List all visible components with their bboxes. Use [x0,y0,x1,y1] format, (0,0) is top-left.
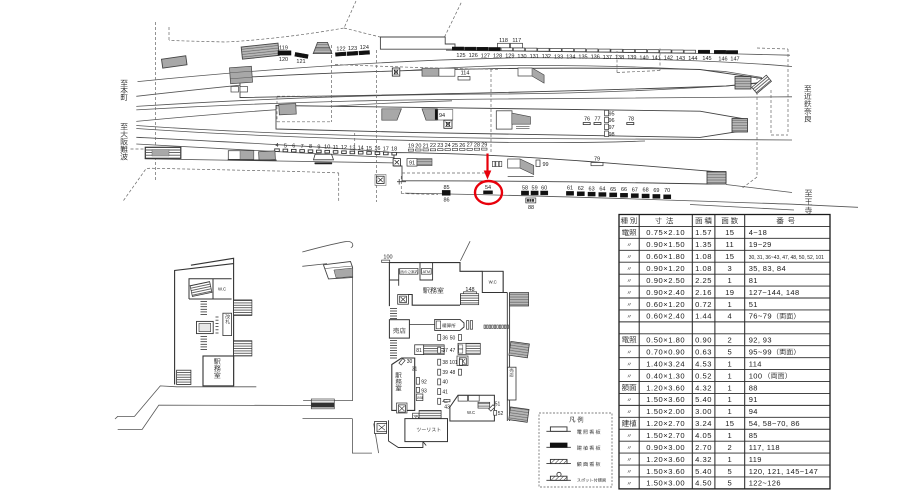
svg-text:0.90×2.40: 0.90×2.40 [646,288,685,297]
svg-text:131: 131 [530,54,539,60]
svg-text:0.70×0.90: 0.70×0.90 [646,347,685,356]
svg-text:141: 141 [652,56,661,62]
svg-text:36: 36 [442,335,448,341]
svg-text:16: 16 [374,146,380,152]
svg-text:63: 63 [589,186,595,192]
svg-text:15: 15 [725,228,734,237]
svg-text:6: 6 [292,144,295,150]
svg-text:15: 15 [725,252,734,261]
svg-text:4.53: 4.53 [695,359,712,368]
svg-text:143: 143 [676,56,685,62]
svg-text:1.08: 1.08 [695,252,712,261]
svg-text:126: 126 [469,53,478,59]
svg-text:W.C: W.C [489,280,497,285]
svg-text:26: 26 [459,143,465,149]
svg-text:39: 39 [442,370,448,376]
svg-text:119: 119 [279,45,288,51]
svg-text:138: 138 [615,55,624,61]
svg-text:68: 68 [643,188,649,194]
svg-text:67: 67 [632,187,638,193]
svg-text:9: 9 [317,144,320,150]
svg-text:70: 70 [664,188,670,194]
svg-text:10: 10 [324,145,330,151]
svg-text:1: 1 [728,371,733,380]
svg-text:1: 1 [728,300,733,309]
svg-text:59: 59 [532,186,538,192]
svg-text:134: 134 [566,54,575,60]
svg-text:127: 127 [481,53,490,59]
svg-text:66: 66 [621,187,627,193]
svg-text:14: 14 [358,146,364,152]
svg-text:121: 121 [296,59,305,65]
svg-text:118: 118 [499,38,508,44]
svg-text:41: 41 [442,389,448,395]
svg-text:43: 43 [444,405,450,411]
svg-text:0.40×1.30: 0.40×1.30 [646,371,685,380]
svg-text:60: 60 [541,186,547,192]
svg-text:4: 4 [728,312,733,321]
svg-text:0.60×1.80: 0.60×1.80 [646,252,685,261]
svg-text:30, 31, 36~43, 47, 48, 50, 52,: 30, 31, 36~43, 47, 48, 50, 52, 101 [749,255,824,261]
svg-text:W.C: W.C [467,410,475,415]
svg-text:1.44: 1.44 [695,312,712,321]
svg-text:21: 21 [423,143,429,149]
svg-text:1.50×2.70: 1.50×2.70 [646,431,685,440]
svg-text:122~126: 122~126 [749,479,781,488]
svg-text:78: 78 [628,116,634,122]
svg-text:4: 4 [275,143,278,149]
svg-text:0.60×1.20: 0.60×1.20 [646,300,685,309]
svg-text:19: 19 [408,144,414,150]
svg-text:2.25: 2.25 [695,276,712,285]
svg-text:18: 18 [391,147,397,153]
svg-text:69: 69 [653,188,659,194]
svg-text:22: 22 [430,143,436,149]
svg-text:140: 140 [639,55,648,61]
svg-text:88: 88 [749,383,758,392]
svg-text:1.35: 1.35 [695,240,712,249]
svg-text:4~18: 4~18 [749,228,768,237]
svg-text:0.90×2.50: 0.90×2.50 [646,276,685,285]
svg-text:120, 121, 145~147: 120, 121, 145~147 [749,467,819,476]
svg-text:146: 146 [718,56,727,62]
svg-text:98: 98 [608,132,614,138]
svg-text:1.20×3.60: 1.20×3.60 [646,455,685,464]
svg-text:145: 145 [702,56,711,62]
svg-text:52: 52 [498,411,504,417]
svg-text:8: 8 [309,144,312,150]
svg-text:114: 114 [749,359,762,368]
svg-text:4.32: 4.32 [695,455,712,464]
svg-text:13: 13 [349,145,355,151]
svg-text:125: 125 [456,53,465,59]
svg-text:4.50: 4.50 [695,479,712,488]
svg-text:77: 77 [594,116,600,122]
svg-text:3.24: 3.24 [695,419,712,428]
svg-text:0.75×2.10: 0.75×2.10 [646,228,685,237]
svg-text:0.63: 0.63 [695,347,712,356]
svg-text:1: 1 [728,395,733,404]
svg-text:23: 23 [437,143,443,149]
svg-text:96: 96 [608,118,614,124]
svg-text:93: 93 [421,389,427,395]
svg-text:58: 58 [522,186,528,192]
svg-text:54: 54 [485,185,491,191]
svg-text:0.90×1.20: 0.90×1.20 [646,264,685,273]
svg-text:139: 139 [627,55,636,61]
svg-text:94: 94 [439,113,445,119]
svg-text:1: 1 [728,431,733,440]
svg-text:24: 24 [445,143,451,149]
svg-text:81: 81 [416,348,422,354]
svg-text:62: 62 [578,186,584,192]
svg-text:147: 147 [730,57,739,63]
svg-text:30: 30 [407,359,413,365]
svg-text:1.57: 1.57 [695,228,712,237]
svg-text:0.50×1.80: 0.50×1.80 [646,336,685,345]
svg-text:94: 94 [749,407,758,416]
svg-text:92: 92 [421,380,427,386]
svg-text:1: 1 [728,276,733,285]
svg-text:136: 136 [591,55,600,61]
svg-text:95~99: 95~99 [749,347,772,356]
svg-text:19~29: 19~29 [749,240,772,249]
svg-text:4.32: 4.32 [695,383,712,392]
svg-text:129: 129 [505,54,514,60]
svg-text:0.90×3.00: 0.90×3.00 [646,443,685,452]
svg-text:7: 7 [301,144,304,150]
svg-text:15: 15 [366,146,372,152]
svg-text:100: 100 [383,255,392,261]
svg-text:65: 65 [610,187,616,193]
svg-text:2: 2 [728,336,733,345]
svg-text:133: 133 [554,54,563,60]
svg-text:1.50×2.00: 1.50×2.00 [646,407,685,416]
svg-text:1.20×3.60: 1.20×3.60 [646,383,685,392]
svg-text:0.60×2.40: 0.60×2.40 [646,312,685,321]
svg-text:20: 20 [415,143,421,149]
svg-text:117: 117 [512,38,521,44]
svg-text:1.20×2.70: 1.20×2.70 [646,419,685,428]
svg-text:124: 124 [360,45,369,51]
svg-text:28: 28 [474,143,480,149]
svg-text:0.90×1.50: 0.90×1.50 [646,240,685,249]
svg-text:27: 27 [467,143,473,149]
svg-text:0.90: 0.90 [695,336,712,345]
svg-text:85: 85 [749,431,758,440]
svg-text:88: 88 [528,205,534,211]
svg-text:3: 3 [728,264,733,273]
svg-text:5: 5 [728,467,733,476]
svg-text:2.70: 2.70 [695,443,712,452]
svg-text:15: 15 [725,419,734,428]
svg-text:142: 142 [664,56,673,62]
svg-text:4.05: 4.05 [695,431,712,440]
svg-text:1.40×3.24: 1.40×3.24 [646,359,685,368]
svg-text:79: 79 [594,157,600,163]
svg-text:47: 47 [450,348,456,354]
svg-text:12: 12 [341,145,347,151]
svg-text:99: 99 [542,162,548,168]
svg-text:2: 2 [728,443,733,452]
svg-text:64: 64 [599,187,605,193]
svg-text:5: 5 [728,347,733,356]
svg-text:100: 100 [749,371,763,380]
svg-text:50: 50 [450,335,456,341]
svg-text:85: 85 [443,185,449,191]
svg-text:114: 114 [461,71,470,77]
svg-text:61: 61 [567,186,573,192]
svg-text:17: 17 [383,146,389,152]
svg-text:W.C: W.C [218,287,226,292]
svg-text:19: 19 [725,288,734,297]
svg-text:5.40: 5.40 [695,395,712,404]
svg-text:51: 51 [495,402,501,408]
svg-text:31: 31 [412,367,418,373]
svg-text:122: 122 [336,47,345,53]
svg-text:ATM: ATM [423,270,430,274]
svg-text:137: 137 [603,55,612,61]
svg-text:86: 86 [443,198,449,204]
svg-text:1: 1 [728,455,733,464]
svg-text:48: 48 [450,370,456,376]
svg-text:54, 58~70, 86: 54, 58~70, 86 [749,419,800,428]
svg-text:0.52: 0.52 [695,371,712,380]
svg-text:128: 128 [493,53,502,59]
svg-text:123: 123 [348,46,357,52]
svg-text:91: 91 [409,161,415,167]
svg-text:5: 5 [284,143,287,149]
svg-text:5.40: 5.40 [695,467,712,476]
svg-text:37: 37 [442,348,448,354]
svg-text:76~79: 76~79 [749,312,772,321]
svg-text:29: 29 [481,143,487,149]
svg-text:76: 76 [584,116,590,122]
svg-text:144: 144 [688,56,697,62]
svg-text:117, 118: 117, 118 [749,443,780,452]
svg-text:1: 1 [728,383,733,392]
svg-text:1.50×3.00: 1.50×3.00 [646,479,685,488]
svg-text:1: 1 [728,359,733,368]
svg-text:127~144, 148: 127~144, 148 [749,288,800,297]
svg-text:35, 83, 84: 35, 83, 84 [749,264,786,273]
svg-text:95: 95 [608,111,614,117]
svg-text:120: 120 [279,57,288,63]
svg-text:38: 38 [442,360,448,366]
svg-text:11: 11 [726,240,734,249]
svg-text:25: 25 [452,143,458,149]
svg-text:92, 93: 92, 93 [749,336,772,345]
svg-text:1.50×3.60: 1.50×3.60 [646,467,685,476]
svg-text:0.72: 0.72 [695,300,712,309]
svg-text:11: 11 [333,145,339,151]
svg-text:135: 135 [578,55,587,61]
svg-text:101: 101 [449,360,458,366]
svg-text:2.16: 2.16 [695,288,712,297]
svg-text:5: 5 [728,479,733,488]
svg-text:1.08: 1.08 [695,264,712,273]
svg-text:1: 1 [728,407,733,416]
svg-text:3.00: 3.00 [695,407,712,416]
svg-text:40: 40 [442,380,448,386]
svg-text:91: 91 [749,395,758,404]
svg-text:1.50×3.60: 1.50×3.60 [646,395,685,404]
svg-text:51: 51 [749,300,758,309]
svg-text:81: 81 [749,276,758,285]
svg-text:97: 97 [608,125,614,131]
svg-text:119: 119 [749,455,762,464]
svg-text:130: 130 [517,54,526,60]
svg-text:132: 132 [542,54,551,60]
